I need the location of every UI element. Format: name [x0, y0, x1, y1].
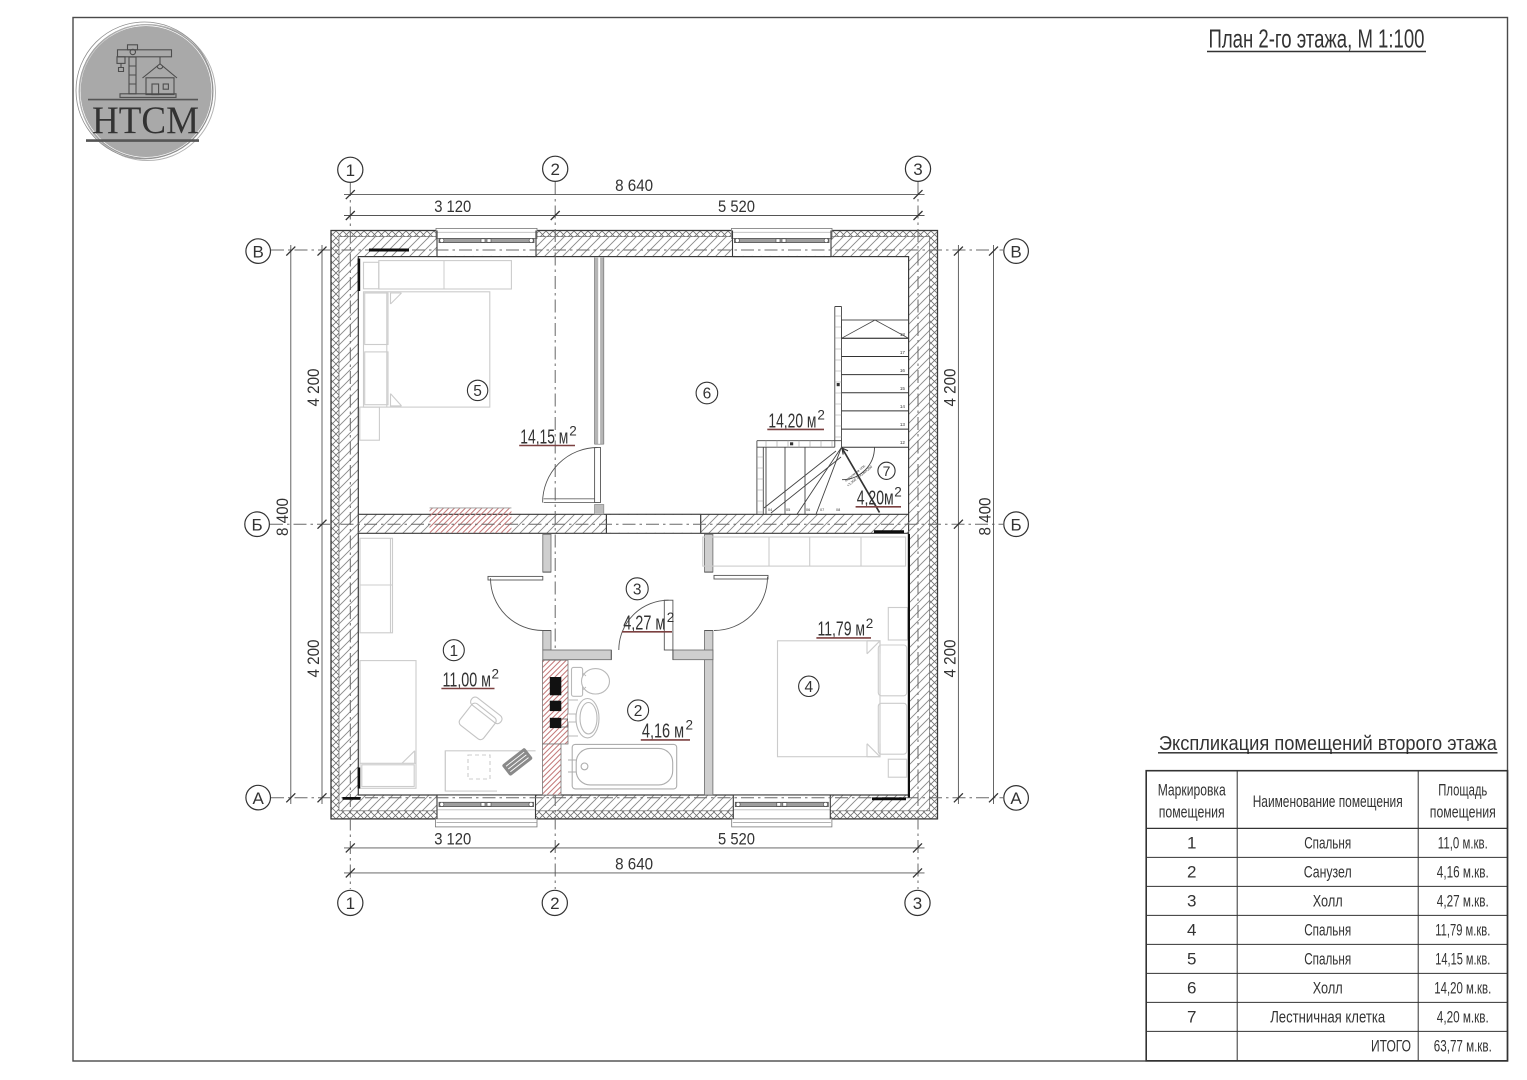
- svg-text:4 200: 4 200: [304, 369, 323, 407]
- svg-text:1: 1: [346, 894, 355, 913]
- svg-text:8 400: 8 400: [273, 498, 292, 536]
- svg-text:5 520: 5 520: [718, 830, 755, 848]
- svg-text:Лестничная клетка: Лестничная клетка: [1270, 1008, 1385, 1027]
- svg-text:15: 15: [900, 386, 906, 391]
- svg-text:Б: Б: [252, 515, 263, 534]
- svg-text:В: В: [1010, 242, 1021, 261]
- svg-text:4: 4: [804, 679, 813, 696]
- svg-text:04: 04: [768, 508, 772, 512]
- svg-text:Маркировка: Маркировка: [1158, 781, 1226, 800]
- svg-text:8 640: 8 640: [615, 177, 653, 195]
- svg-text:3: 3: [913, 160, 922, 179]
- svg-text:8 400: 8 400: [976, 498, 995, 536]
- svg-text:3: 3: [913, 894, 922, 913]
- svg-text:Холл: Холл: [1313, 892, 1343, 911]
- svg-text:4,16 м.кв.: 4,16 м.кв.: [1437, 863, 1489, 882]
- svg-text:7: 7: [883, 463, 891, 479]
- svg-text:2: 2: [817, 408, 825, 423]
- svg-text:2: 2: [686, 718, 694, 733]
- svg-text:11,0 м.кв.: 11,0 м.кв.: [1438, 834, 1488, 853]
- svg-text:1: 1: [1187, 834, 1196, 853]
- svg-text:Наименование помещения: Наименование помещения: [1253, 792, 1403, 811]
- svg-text:3 120: 3 120: [434, 198, 471, 216]
- svg-text:14,20 м.кв.: 14,20 м.кв.: [1434, 979, 1491, 998]
- svg-text:Спальня: Спальня: [1304, 921, 1351, 940]
- svg-text:6: 6: [1187, 979, 1196, 998]
- svg-text:4,16 м: 4,16 м: [642, 719, 684, 742]
- svg-text:7: 7: [1187, 1008, 1196, 1027]
- svg-text:помещения: помещения: [1159, 803, 1225, 822]
- svg-text:4: 4: [1187, 921, 1196, 940]
- svg-text:Холл: Холл: [1313, 979, 1343, 998]
- svg-text:4 200: 4 200: [304, 640, 323, 678]
- svg-text:08: 08: [836, 508, 840, 512]
- svg-text:3: 3: [1187, 892, 1196, 911]
- svg-text:4,20 м.кв.: 4,20 м.кв.: [1437, 1008, 1489, 1027]
- svg-text:2: 2: [492, 667, 500, 682]
- svg-text:5: 5: [1187, 950, 1196, 969]
- svg-text:2: 2: [1187, 863, 1196, 882]
- svg-text:2: 2: [866, 616, 874, 631]
- svg-text:2: 2: [894, 485, 902, 500]
- svg-text:Площадь: Площадь: [1438, 781, 1487, 800]
- svg-text:Санузел: Санузел: [1304, 863, 1352, 882]
- svg-text:12: 12: [900, 440, 906, 445]
- svg-text:8 640: 8 640: [615, 855, 653, 873]
- svg-text:А: А: [253, 789, 265, 808]
- svg-text:ИТОГО: ИТОГО: [1371, 1037, 1411, 1056]
- svg-text:4 200: 4 200: [940, 640, 959, 678]
- svg-text:2: 2: [569, 424, 577, 439]
- svg-text:2: 2: [550, 160, 559, 179]
- svg-text:4 200: 4 200: [940, 369, 959, 407]
- svg-text:План 2-го этажа, М 1:100: План 2-го этажа, М 1:100: [1209, 24, 1425, 54]
- svg-text:Экспликация помещений второго: Экспликация помещений второго этажа: [1159, 733, 1498, 755]
- svg-text:63,77 м.кв.: 63,77 м.кв.: [1434, 1037, 1492, 1056]
- svg-text:2: 2: [550, 894, 559, 913]
- svg-text:07: 07: [820, 508, 824, 512]
- svg-text:18: 18: [900, 332, 906, 337]
- svg-text:3 120: 3 120: [434, 830, 471, 848]
- svg-text:5 520: 5 520: [718, 198, 755, 216]
- svg-text:2: 2: [667, 610, 675, 625]
- svg-text:06: 06: [806, 508, 810, 512]
- svg-text:05: 05: [786, 508, 790, 512]
- svg-text:Спальня: Спальня: [1304, 834, 1351, 853]
- svg-text:Спальня: Спальня: [1304, 950, 1351, 969]
- svg-text:11,79 м.кв.: 11,79 м.кв.: [1435, 921, 1490, 940]
- svg-text:13: 13: [900, 422, 906, 427]
- svg-text:14: 14: [900, 404, 906, 409]
- svg-text:4,27 м.кв.: 4,27 м.кв.: [1437, 892, 1489, 911]
- svg-text:16: 16: [900, 368, 906, 373]
- svg-text:17: 17: [900, 350, 906, 355]
- svg-text:1: 1: [346, 161, 355, 180]
- svg-text:Б: Б: [1011, 515, 1022, 534]
- svg-text:В: В: [253, 242, 264, 261]
- svg-text:3: 3: [633, 581, 642, 598]
- svg-text:помещения: помещения: [1430, 803, 1496, 822]
- svg-text:6: 6: [703, 386, 712, 403]
- svg-text:2: 2: [634, 703, 643, 720]
- svg-text:1: 1: [449, 643, 458, 660]
- svg-text:14,15 м.кв.: 14,15 м.кв.: [1435, 950, 1490, 969]
- svg-text:5: 5: [473, 383, 482, 400]
- svg-text:А: А: [1010, 789, 1022, 808]
- svg-text:НТСМ: НТСМ: [92, 99, 199, 142]
